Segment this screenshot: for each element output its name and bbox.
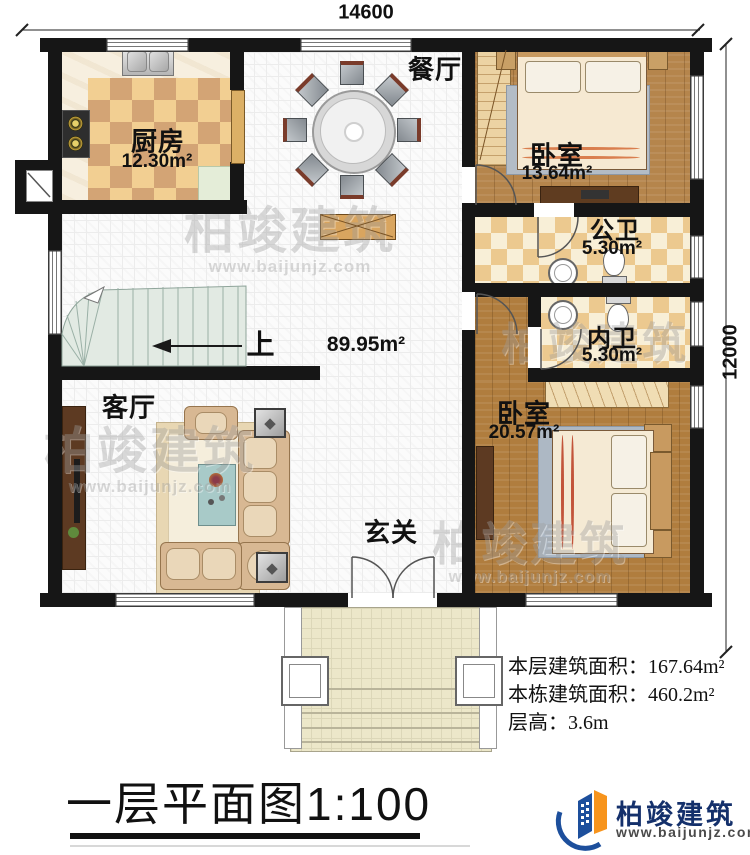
window: [48, 250, 62, 335]
company-logo-mark: [558, 790, 607, 848]
door-opening: [534, 203, 574, 217]
sideboard: [320, 214, 396, 240]
dimension-right: 12000: [720, 324, 743, 380]
sink-bowl: [149, 51, 169, 72]
sofa-bottom: [160, 542, 242, 590]
door-opening: [462, 292, 475, 330]
bed-pillow: [525, 61, 581, 93]
stove-burner: [68, 116, 83, 131]
room-area-private-bath: 5.30m²: [582, 345, 642, 367]
wall-kitchen-bottom: [15, 200, 247, 214]
bed-pillow: [611, 493, 647, 547]
porch-column-right: [455, 656, 503, 706]
bed-headboard: [650, 452, 672, 530]
stairs-up-label: 上: [246, 323, 275, 363]
room-label-foyer: 玄关: [364, 513, 418, 550]
stove-burner: [68, 136, 83, 151]
window: [525, 593, 618, 607]
window: [300, 38, 412, 52]
wall-foyer-bedroom2: [462, 330, 475, 607]
logo-url-text: www.baijunjz.com: [616, 824, 750, 840]
plant: [68, 527, 79, 538]
end-table: ◆: [256, 552, 288, 583]
end-table: ◆: [254, 408, 286, 438]
sofa-right: [238, 430, 290, 546]
bedroom2-wardrobe: [545, 378, 669, 408]
dining-table-hub: [344, 122, 364, 142]
dining-chair: [283, 118, 307, 142]
table-decor: [219, 495, 225, 501]
wall-bath-bedroom2: [528, 368, 704, 382]
entry-door-opening: [348, 593, 437, 607]
table-flowers: [209, 473, 223, 487]
bedroom2-tv-cabinet: [476, 446, 494, 540]
window: [690, 75, 704, 180]
coffee-table: [198, 464, 236, 526]
kitchen-door: [231, 90, 245, 164]
porch-step-edge: [295, 727, 485, 729]
sofa-cushion: [195, 412, 227, 434]
bed-pillow: [611, 435, 647, 489]
porch-step-edge: [295, 712, 485, 714]
living-tv-cabinet: [62, 406, 86, 570]
wall-stair-living: [48, 366, 320, 380]
wall-kitchen-right: [230, 38, 244, 90]
window: [106, 38, 189, 52]
bedroom1-desk: [540, 186, 639, 204]
dining-chair: [340, 175, 364, 199]
sofa-cushion: [243, 505, 277, 537]
dining-chair: [340, 61, 364, 85]
door-opening: [528, 327, 541, 368]
dimension-top: 14600: [338, 2, 394, 25]
side-door-niche: [26, 170, 53, 202]
wall-bath-divider: [462, 283, 704, 297]
laptop: [581, 190, 609, 199]
info-floor-area: 本层建筑面积：167.64m²: [508, 650, 725, 679]
bedroom2-bed: [552, 430, 654, 554]
window: [690, 301, 704, 347]
table-decor: [208, 499, 214, 505]
sofa-cushion: [202, 548, 236, 580]
bed-pillow: [585, 61, 641, 93]
door-opening: [462, 167, 475, 203]
sofa-cushion: [243, 437, 277, 469]
wall-kitchen-right: [230, 162, 244, 214]
kitchen-stove: [62, 110, 90, 158]
title-underline: [70, 833, 420, 839]
private-bath-sink: [548, 300, 578, 330]
sofa-cushion: [166, 548, 200, 580]
bedroom2-vestibule-floor: [475, 292, 528, 382]
info-floor-height: 层高：3.6m: [508, 706, 609, 735]
window: [690, 235, 704, 279]
porch-column-left: [281, 656, 329, 706]
title-underline-thin: [70, 845, 470, 847]
room-area-kitchen: 12.30m²: [122, 151, 193, 173]
sink-bowl: [127, 51, 147, 72]
open-area-label: 89.95m²: [327, 333, 405, 357]
wall-bedroom1-bottom: [462, 203, 704, 217]
floor-plan-canvas: ◆ ◆ 柏竣建筑 www.baijunjz.com 柏竣建筑 柏竣建筑 www.…: [0, 0, 750, 855]
window: [690, 385, 704, 429]
tv: [74, 459, 80, 523]
sofa-single: [184, 406, 238, 440]
blanket-stripe: [571, 435, 574, 549]
info-building-area: 本栋建筑面积：460.2m²: [508, 678, 715, 707]
blanket-stripe: [561, 435, 564, 549]
room-area-bedroom1: 13.64m²: [522, 163, 593, 185]
room-area-bedroom2: 20.57m²: [489, 422, 560, 444]
page-title: 一层平面图1:100: [66, 768, 431, 834]
dining-chair: [397, 118, 421, 142]
window: [115, 593, 255, 607]
sofa-cushion: [243, 471, 277, 503]
wall-vestibule-bath: [528, 297, 541, 327]
room-area-public-bath: 5.30m²: [582, 238, 642, 260]
wall-dining-bedroom1: [462, 38, 475, 167]
room-label-living: 客厅: [102, 388, 156, 425]
porch-step-edge: [295, 741, 485, 743]
room-label-dining: 餐厅: [408, 50, 462, 87]
